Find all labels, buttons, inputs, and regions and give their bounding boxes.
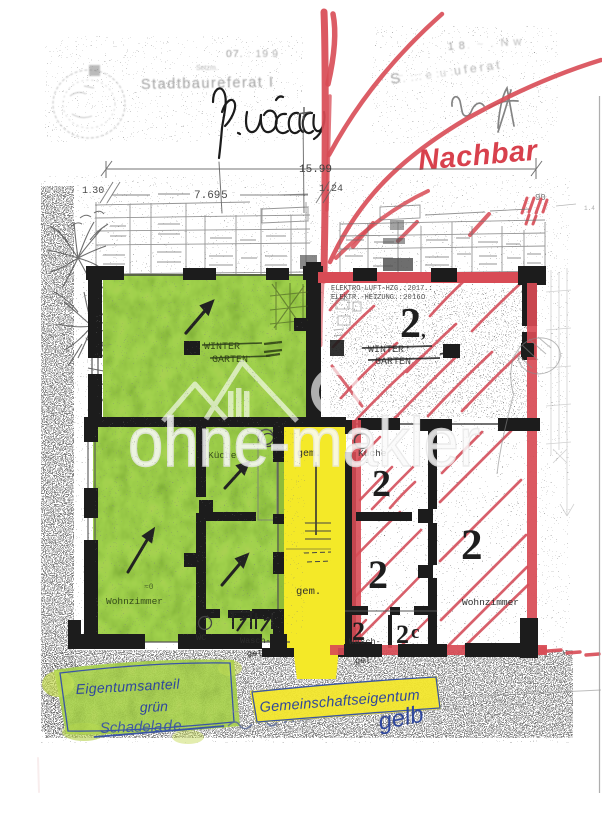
svg-text:gel: gel <box>247 649 262 659</box>
svg-text:1.30: 1.30 <box>82 186 104 197</box>
svg-text:gel: gel <box>355 656 370 666</box>
svg-text:1.24: 1.24 <box>319 184 343 195</box>
svg-text:2: 2 <box>461 522 483 569</box>
svg-text:2: 2 <box>368 552 388 597</box>
svg-text:grün: grün <box>140 698 169 715</box>
svg-text:7.69 5: 7.69 5 <box>194 190 228 202</box>
svg-text:1.4: 1.4 <box>584 205 595 212</box>
svg-text:07. : 19 9: 07. : 19 9 <box>226 48 279 60</box>
svg-text:Wasch-: Wasch- <box>240 636 271 646</box>
svg-text:Stadtbaureferat I: Stadtbaureferat I <box>141 75 275 93</box>
svg-text:Setzm.: Setzm. <box>196 65 218 72</box>
svg-text:Schadela d e: Schadela d e <box>100 717 182 737</box>
svg-text:Wohnzimmer: Wohnzimmer <box>462 597 519 608</box>
svg-text:ELEKTRO-LUFT-HZG .: 2017.:: ELEKTRO-LUFT-HZG .: 2017.: <box>331 285 433 293</box>
svg-text:c: c <box>411 622 419 643</box>
